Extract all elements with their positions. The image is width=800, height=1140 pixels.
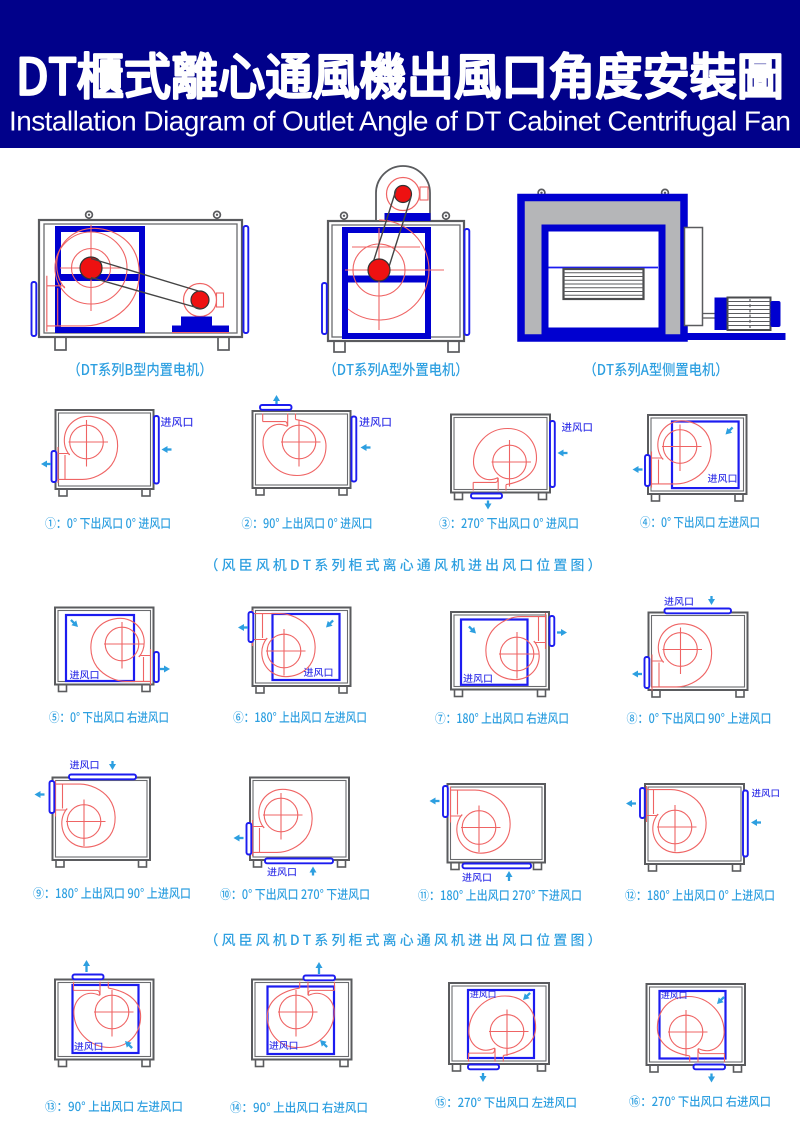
svg-text:Installation Diagram of Outlet: Installation Diagram of Outlet Angle of … [9, 106, 791, 137]
